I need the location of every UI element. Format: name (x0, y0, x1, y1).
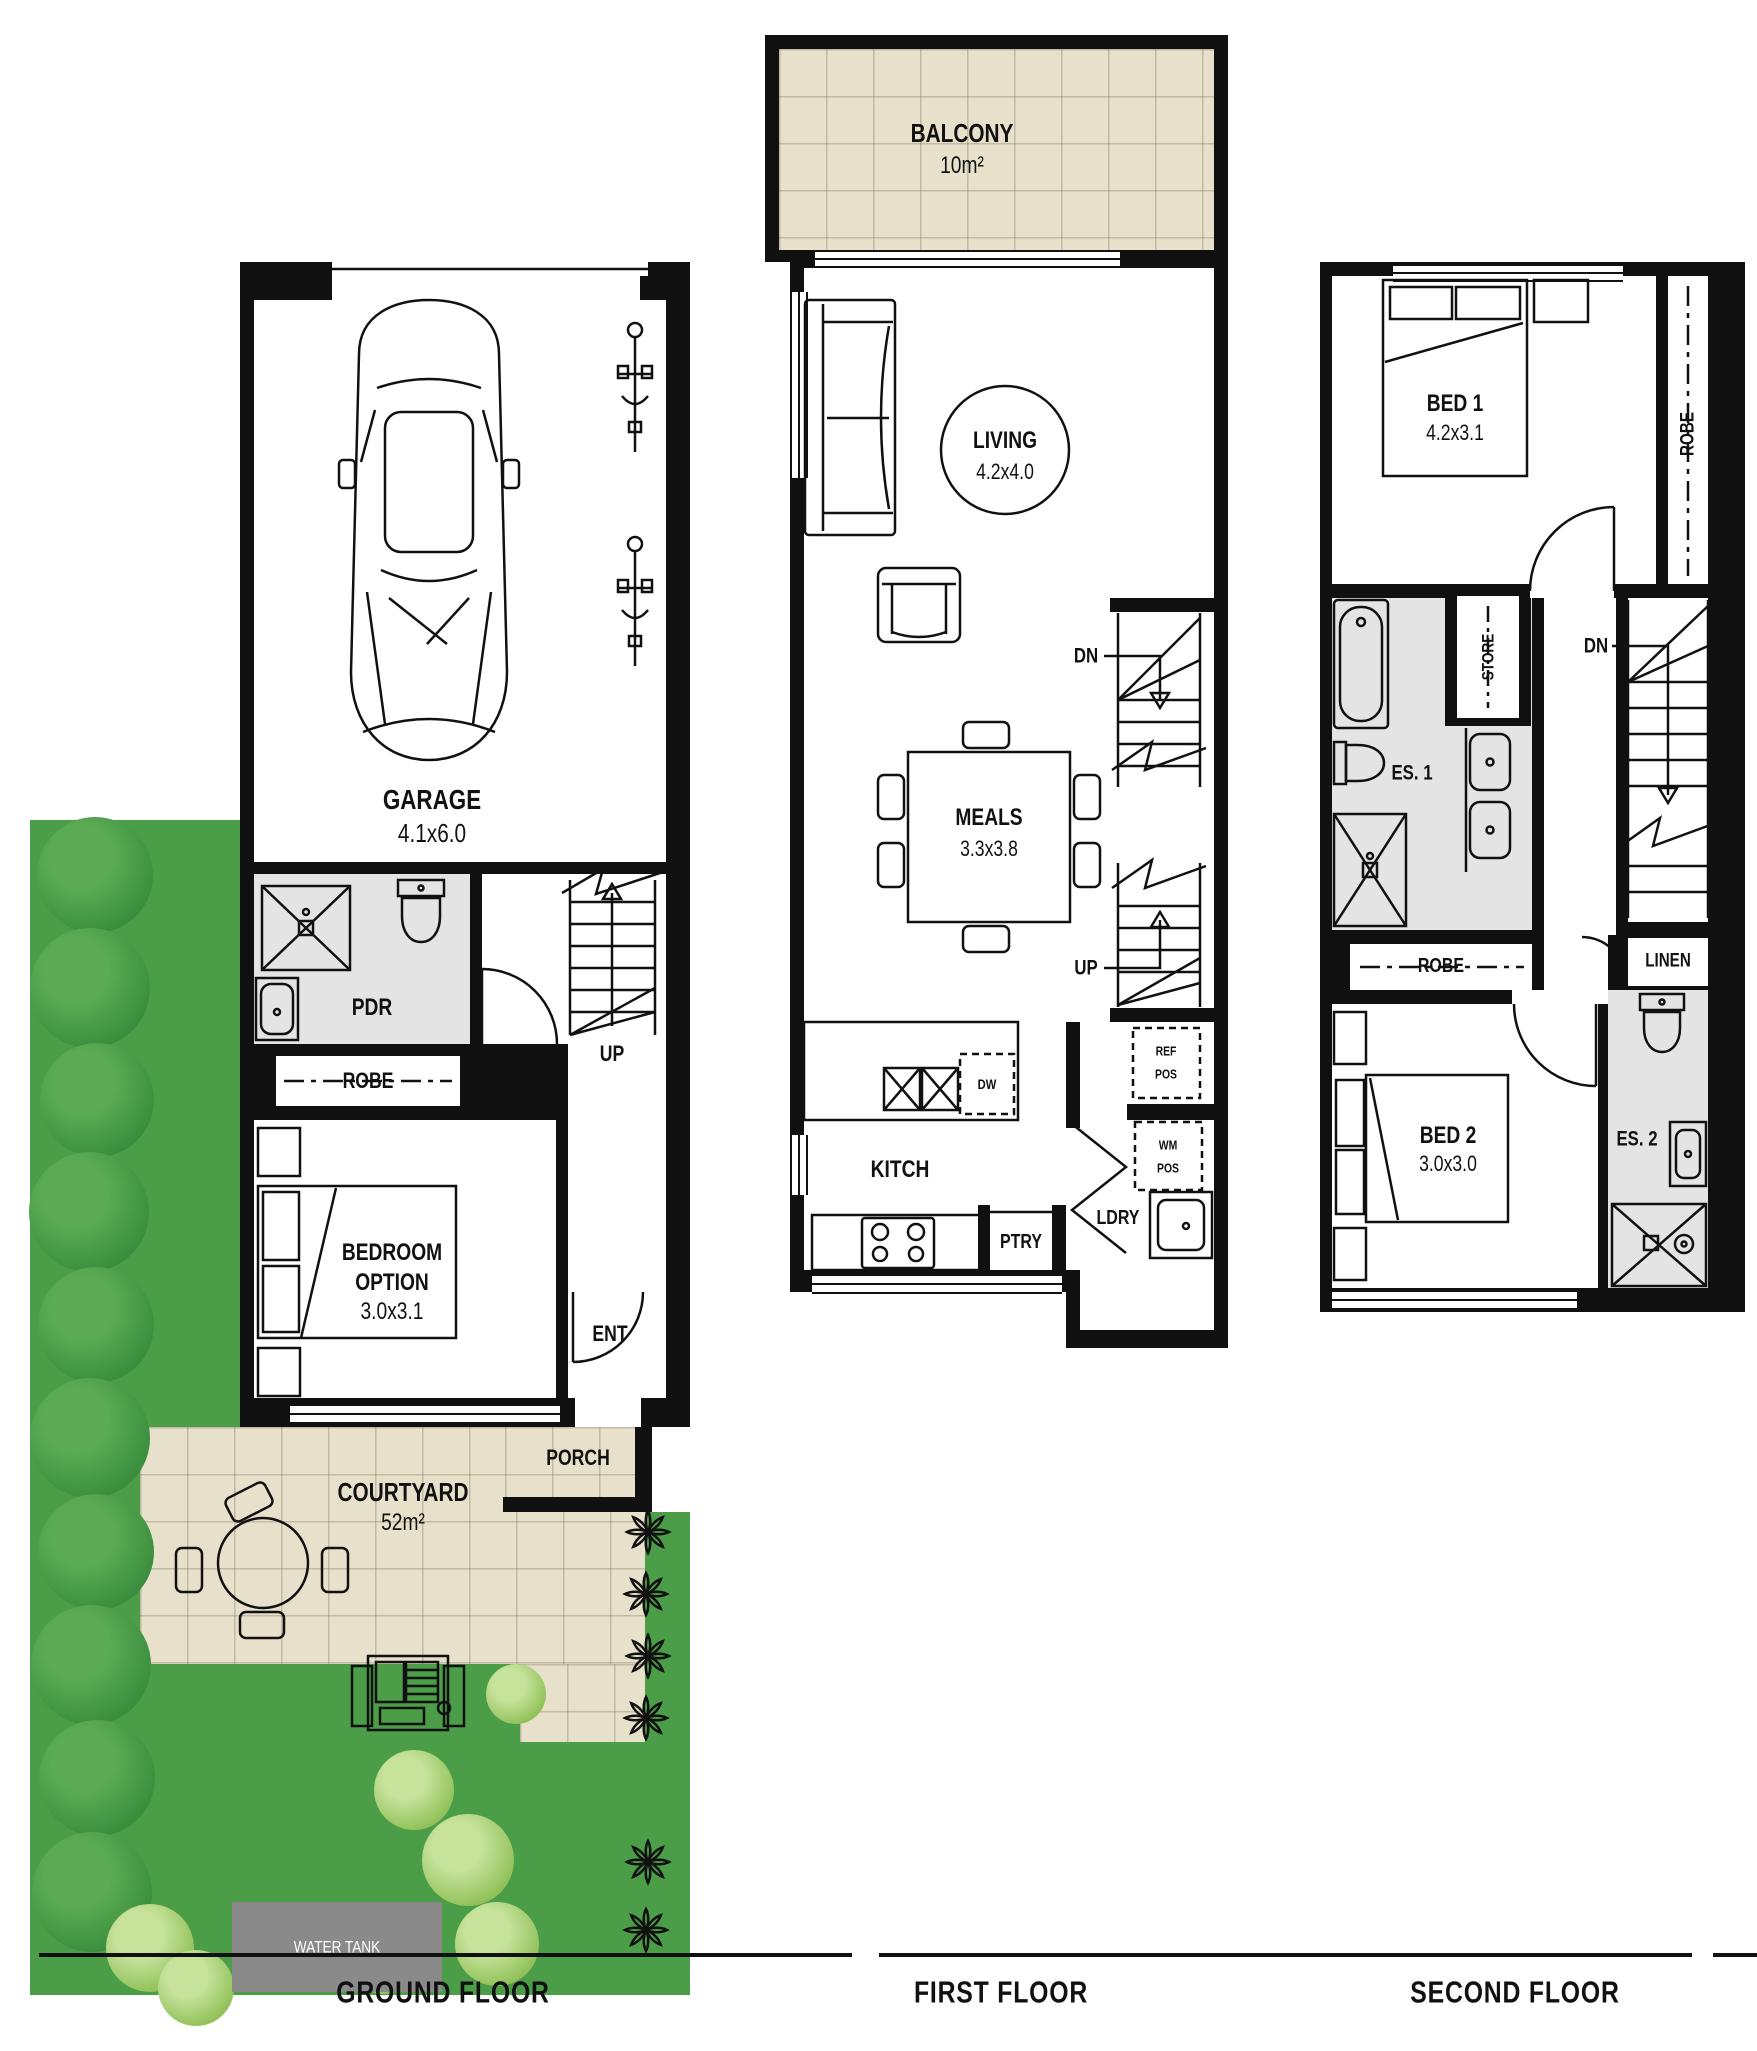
robe-label-bed2: ROBE (1418, 956, 1464, 976)
toilet-icon (398, 880, 444, 942)
footer-rule (39, 1953, 852, 1957)
toilet-es2-icon (1640, 994, 1684, 1052)
bed1-dims: 4.2x3.1 (1426, 422, 1484, 444)
toilet-es1-icon (1334, 742, 1384, 784)
kitchen-sink-icon (884, 1068, 958, 1110)
shower-es2-icon (1612, 1204, 1706, 1286)
dn-label-second: DN (1584, 636, 1608, 657)
outdoor-table-icon (176, 1480, 348, 1638)
ent-label: ENT (592, 1323, 627, 1345)
loveseat-icon (878, 568, 960, 642)
garage-label: GARAGE (383, 786, 481, 814)
bath-icon (1334, 600, 1388, 728)
palm-plant (625, 1573, 667, 1615)
palm-plant (627, 1841, 669, 1883)
dw-label: DW (978, 1077, 997, 1091)
footer-rule (1713, 1953, 1757, 1957)
palm-plant (625, 1697, 667, 1739)
kitchen-bench (812, 1215, 985, 1270)
living-dims: 4.2x4.0 (976, 461, 1034, 483)
ground-floor-caption: GROUND FLOOR (336, 1977, 550, 2008)
kitchen-island (804, 1022, 1018, 1120)
garage-tool-icon (618, 323, 652, 452)
ldry-label: LDRY (1097, 1208, 1140, 1228)
wm-pos-label2: POS (1157, 1162, 1179, 1175)
up-label-first: UP (1074, 958, 1097, 979)
wm-pos-label1: WM (1159, 1139, 1177, 1152)
courtyard-label: COURTYARD (338, 1479, 469, 1505)
bedroom-option-label1: BEDROOM (342, 1241, 442, 1265)
robe-label-ground: ROBE (343, 1070, 394, 1092)
fridge-position-box (1133, 1028, 1200, 1098)
meals-label: MEALS (955, 806, 1022, 830)
shower-icon (262, 886, 350, 970)
balcony-area: 10m² (940, 154, 984, 178)
vanity-icon (1466, 728, 1510, 872)
meals-dims: 3.3x3.8 (960, 838, 1018, 860)
garage-tool-icon (618, 537, 652, 666)
second-floor-caption: SECOND FLOOR (1410, 1977, 1619, 2008)
garage-dims: 4.1x6.0 (398, 820, 466, 846)
stairs-down-first (1104, 613, 1206, 787)
stove-icon (862, 1218, 934, 1268)
laundry-sink-icon (1150, 1192, 1212, 1258)
bedroom-option-label2: OPTION (355, 1271, 429, 1295)
living-label: LIVING (973, 429, 1037, 453)
bed1-icon (1383, 280, 1588, 476)
shower-es1-icon (1334, 814, 1406, 926)
ref-pos-label1: REF (1156, 1045, 1177, 1058)
sofa-icon (805, 300, 895, 535)
porch-label: PORCH (546, 1447, 610, 1469)
robe-label-bed1: ROBE (1679, 412, 1698, 456)
bbq-icon (352, 1656, 464, 1730)
stairs-up-ground (562, 869, 660, 1035)
store-label: STORE (1480, 634, 1497, 681)
car-icon (339, 300, 519, 760)
up-label-ground: UP (600, 1043, 624, 1065)
pdr-door-arc (482, 969, 557, 1044)
linen-door-arc (1582, 937, 1625, 980)
es1-label: ES. 1 (1391, 763, 1432, 784)
palm-plant (625, 1909, 667, 1951)
palm-plant (627, 1635, 669, 1677)
sink-icon (256, 978, 298, 1040)
floor-plan: GARAGE 4.1x6.0 PDR ROBE UP BEDROOM OPTIO… (0, 0, 1757, 2051)
bed2-door-arc (1514, 1004, 1596, 1086)
washer-position-box (1135, 1122, 1202, 1190)
first-floor-caption: FIRST FLOOR (914, 1977, 1088, 2008)
sink-es2-icon (1670, 1122, 1706, 1186)
courtyard-area: 52m² (381, 1511, 425, 1535)
ref-pos-label2: POS (1155, 1068, 1177, 1081)
bed2-dims: 3.0x3.0 (1419, 1153, 1477, 1175)
es2-label: ES. 2 (1616, 1129, 1657, 1150)
bed2-label: BED 2 (1420, 1124, 1477, 1148)
kitch-label: KITCH (871, 1158, 930, 1182)
bed1-label: BED 1 (1427, 392, 1484, 416)
ptry-label: PTRY (1000, 1232, 1042, 1252)
dn-label-first: DN (1074, 646, 1098, 667)
stairs-up-first (1104, 860, 1206, 1007)
balcony-label: BALCONY (911, 120, 1014, 146)
bed1-door-arc (1530, 507, 1614, 591)
bedroom-option-dims: 3.0x3.1 (361, 1300, 424, 1324)
palm-plant (627, 1511, 669, 1553)
linen-label: LINEN (1645, 952, 1691, 971)
stairs-down-second (1612, 600, 1713, 918)
footer-rule (879, 1953, 1692, 1957)
pdr-label: PDR (352, 996, 393, 1020)
ldry-bifold-door (1072, 1124, 1126, 1253)
